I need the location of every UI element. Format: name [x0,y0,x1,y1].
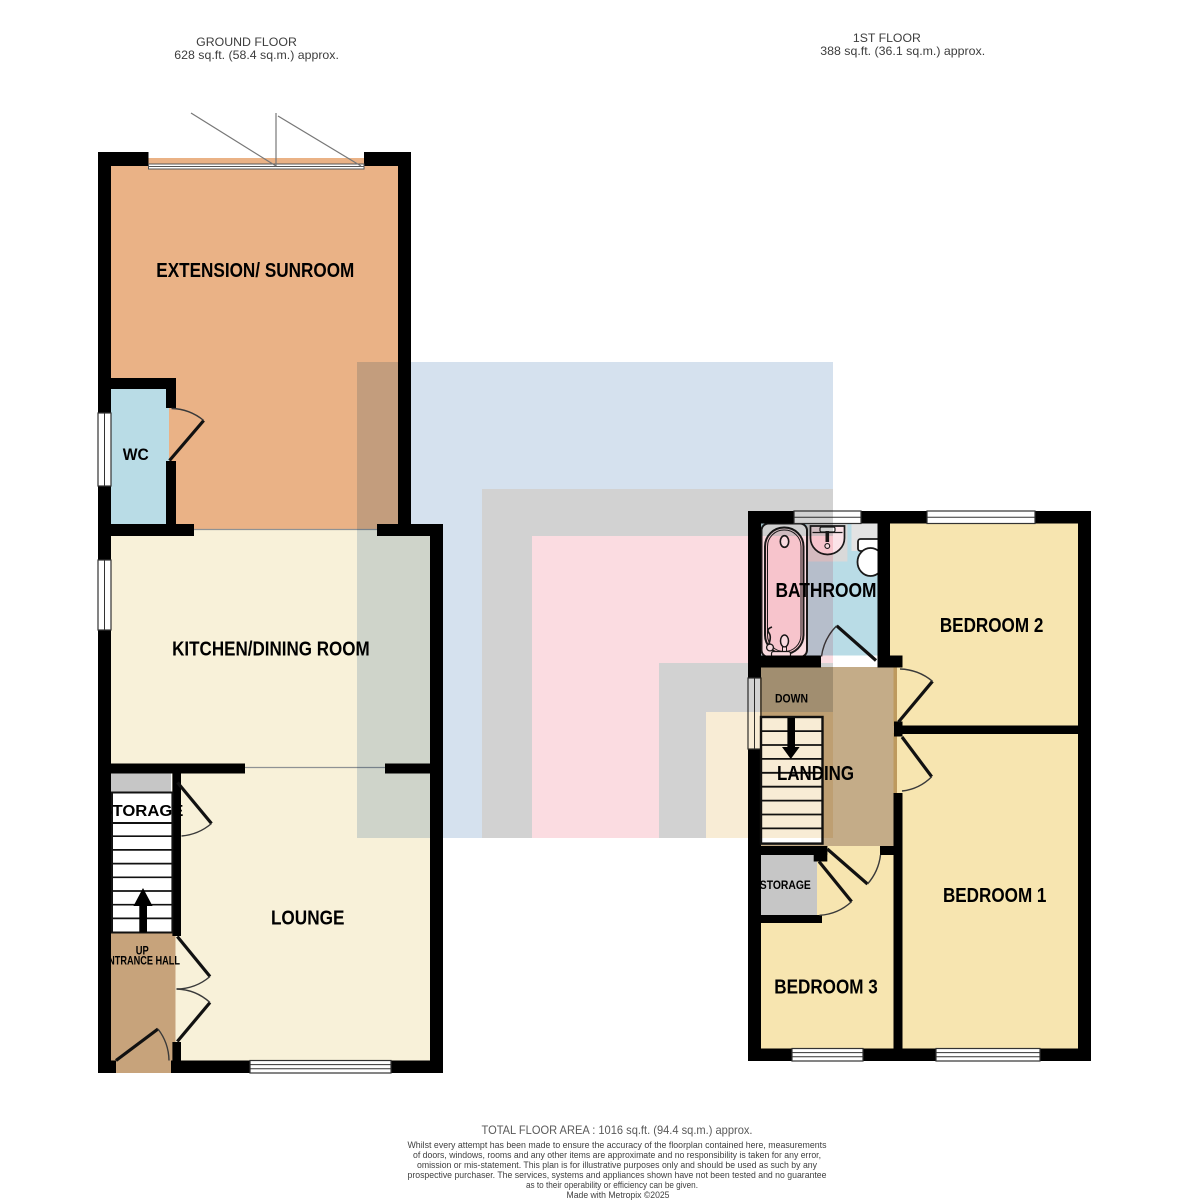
svg-text:BATHROOM: BATHROOM [776,580,877,602]
svg-text:BEDROOM 3: BEDROOM 3 [774,976,878,998]
svg-text:BEDROOM 1: BEDROOM 1 [943,885,1047,907]
svg-text:prospective purchaser. The ser: prospective purchaser. The services, sys… [408,1170,827,1180]
svg-text:WC: WC [123,445,149,464]
svg-text:388 sq.ft. (36.1 sq.m.) approx: 388 sq.ft. (36.1 sq.m.) approx. [820,44,985,58]
svg-text:1ST FLOOR: 1ST FLOOR [853,31,921,45]
svg-text:STORAGE: STORAGE [101,803,183,820]
svg-text:DOWN: DOWN [775,693,808,705]
svg-text:STORAGE: STORAGE [760,878,811,892]
svg-text:Whilst every attempt has been: Whilst every attempt has been made to en… [408,1140,827,1150]
svg-text:BEDROOM 2: BEDROOM 2 [940,615,1044,637]
svg-text:EXTENSION/ SUNROOM: EXTENSION/ SUNROOM [156,260,354,282]
svg-text:628 sq.ft. (58.4 sq.m.) approx: 628 sq.ft. (58.4 sq.m.) approx. [174,48,339,62]
svg-text:KITCHEN/DINING ROOM: KITCHEN/DINING ROOM [172,638,370,660]
svg-text:LANDING: LANDING [777,763,854,785]
svg-text:omission or mis-statement. Thi: omission or mis-statement. This plan is … [417,1160,817,1170]
svg-text:UP: UP [136,943,149,957]
svg-text:as to their operability or eff: as to their operability or efficiency ca… [526,1180,698,1190]
svg-text:Made with Metropix ©2025: Made with Metropix ©2025 [567,1190,670,1200]
svg-text:TOTAL FLOOR AREA : 1016 sq.ft.: TOTAL FLOOR AREA : 1016 sq.ft. (94.4 sq.… [482,1123,753,1137]
svg-text:of doors, windows, rooms and a: of doors, windows, rooms and any other i… [413,1150,821,1160]
svg-text:LOUNGE: LOUNGE [271,908,345,930]
svg-text:GROUND FLOOR: GROUND FLOOR [196,35,297,49]
